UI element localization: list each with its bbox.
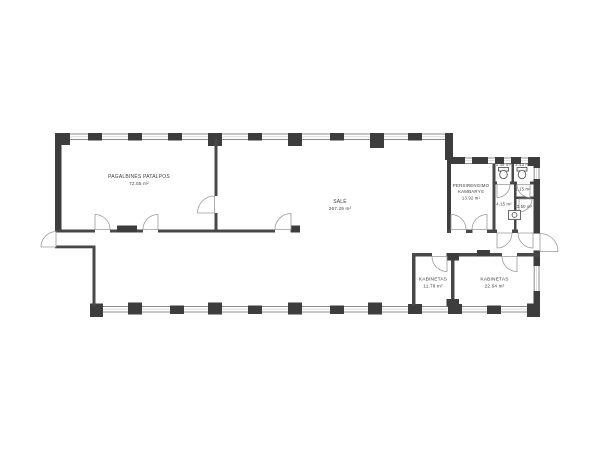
room-area-label: 267.29 m² [329,206,352,211]
door-arc-pagalbines-side [198,196,215,213]
door-arc-kabinetas-1 [432,257,447,272]
door-arc-kabinetas-2 [502,257,517,272]
door-arc-corridor-2 [518,233,533,248]
room-area-wc-2: 2.43 m² [515,162,531,167]
room-label: KAMBARYS [458,189,484,194]
door-arc-415 [497,185,510,198]
door-arc-persirengimo-1 [451,215,466,230]
room-label: SALĖ [333,198,347,205]
room-persirengimo-kambarys: PERSIRENGIMO KAMBARYS 13.92 m² [453,183,490,201]
room-kabinetas-1: KABINETAS 11.78 m² [419,277,447,289]
room-label: KABINETAS [480,277,508,283]
toilet-icon [499,168,509,179]
door-arc-pagalbines-2 [143,215,158,230]
toilet-icon [517,168,527,179]
sink-icon [509,211,521,220]
room-area-label: 13.92 m² [462,196,481,201]
room-label: PAGALBINĖS PATALPOS [108,173,170,180]
room-area-label: 72.55 m² [129,181,149,186]
door-arc-corridor-1 [497,233,512,248]
room-area-label: 22.64 m² [485,284,505,289]
window-band-right [533,157,541,310]
room-label: KABINETAS [419,277,447,283]
door-arc-exit-right [540,234,558,252]
wall-pagalbines-bottom [55,226,300,233]
door-arc-persirengimo-2 [472,215,487,230]
room-area-wc-1: 1.46 m² [496,162,512,167]
door-arc-hall [275,214,291,230]
wall-left [55,133,96,307]
room-area-label: 11.78 m² [423,284,443,289]
wall-pagalbines-right [215,140,218,231]
room-area-350: 3.50 m² [517,204,533,209]
room-area-115: 1.15 m² [515,187,531,192]
door-arc-entrance-left [41,232,56,248]
room-label: PERSIRENGIMO [453,183,490,188]
room-kabinetas-2: KABINETAS 22.64 m² [480,277,508,289]
room-sale: SALĖ 267.29 m² [329,198,352,211]
door-arc-pagalbines-1 [95,215,110,230]
room-area-415: 4.15 m² [496,202,512,207]
room-pagalbines-patalpos: PAGALBINĖS PATALPOS 72.55 m² [108,173,170,186]
window-band-bottom [90,306,540,313]
floor-plan-svg: PAGALBINĖS PATALPOS 72.55 m² SALĖ 267.29… [0,0,600,450]
floor-plan-page: PAGALBINĖS PATALPOS 72.55 m² SALĖ 267.29… [0,0,600,450]
